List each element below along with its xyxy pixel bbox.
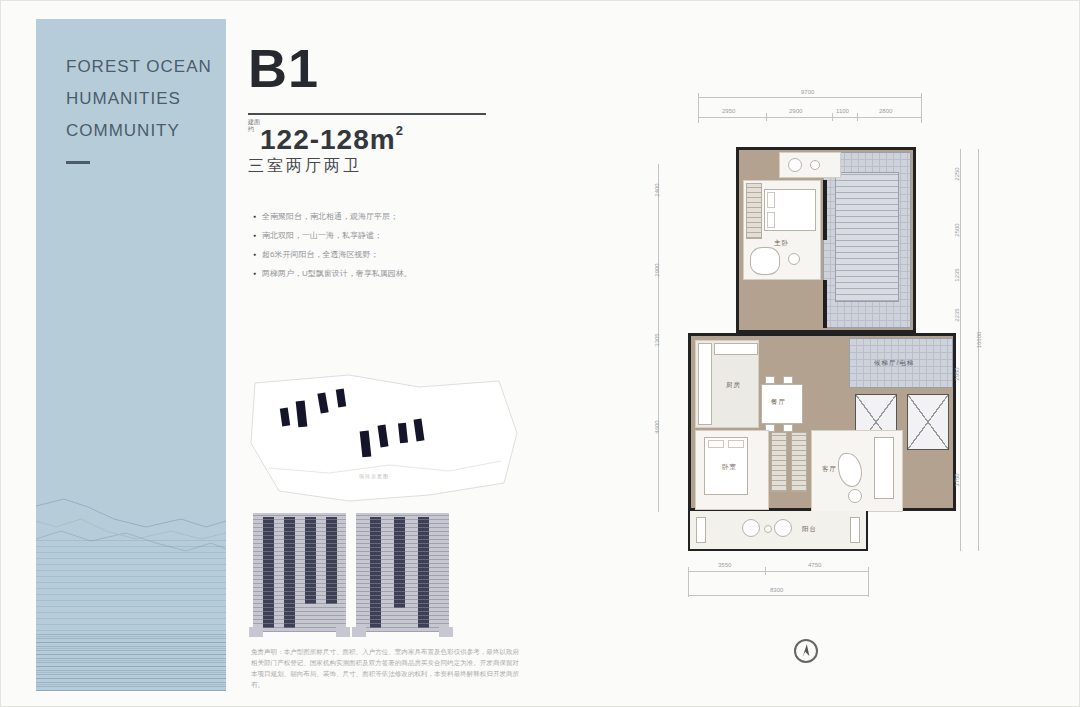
brand-slogan-line3: COMMUNITY	[66, 115, 212, 147]
selling-point: 两梯两户，U型飘窗设计，奢享私属园林。	[253, 264, 412, 283]
main-unit-block: 厨房 候梯厅/电梯 餐厅 卧室 客厅	[688, 333, 956, 511]
dim-left-seg: 4600	[654, 414, 660, 440]
tower-base	[336, 627, 350, 637]
site-boundary	[249, 373, 521, 509]
pillow	[767, 212, 775, 228]
bedroom-top-room: 主卧	[743, 180, 821, 280]
pillow	[728, 440, 744, 448]
dim-tick	[698, 93, 699, 123]
brand-slogan-line2: HUMANITIES	[66, 83, 212, 115]
dim-top-seg: 1100	[836, 108, 849, 114]
window-stripe	[305, 517, 316, 604]
dim-bottom-overall: 8300	[770, 587, 783, 593]
dim-left-seg: 3305	[654, 327, 660, 353]
bathtub	[750, 247, 780, 275]
dim-right-seg: 2500	[954, 217, 960, 243]
dim-left-seg: 2900	[654, 257, 660, 283]
wardrobe	[791, 432, 807, 492]
room-label-kitchen: 厨房	[726, 381, 741, 390]
room-label-lobby: 候梯厅/电梯	[874, 359, 914, 368]
chair	[783, 376, 793, 384]
balcony-chair	[774, 519, 792, 537]
dim-line	[698, 97, 921, 98]
dim-right-seg: 2950	[954, 361, 960, 387]
elevator-shaft	[907, 394, 949, 450]
pillow	[767, 192, 775, 208]
planter	[850, 517, 860, 543]
balcony: 阳台	[688, 511, 868, 551]
side-chair	[848, 489, 862, 503]
room-label-dining: 餐厅	[771, 398, 786, 407]
selling-points-list: 全南聚阳台，南北相通，观海厅平层； 南北双阳，一山一海，私享静谧； 超6米开间阳…	[253, 207, 412, 283]
window-stripe	[284, 517, 295, 628]
dim-bottom-seg: 3550	[718, 562, 731, 568]
room-label-bedroom-top: 主卧	[774, 239, 789, 248]
dim-right-seg: 2250	[954, 161, 960, 187]
bedroom-room: 卧室	[695, 430, 769, 510]
area-row: 建面约122-128m2	[248, 119, 403, 156]
dim-line	[698, 117, 921, 118]
bed	[764, 189, 816, 231]
title-rule	[248, 113, 486, 115]
dim-bottom-seg: 4750	[808, 562, 821, 568]
toilet	[788, 253, 800, 265]
chair	[765, 376, 775, 384]
dim-tick	[857, 113, 858, 121]
selling-point: 全南聚阳台，南北相通，观海厅平层；	[253, 207, 412, 226]
tower-base	[249, 627, 263, 637]
balcony-chair	[742, 519, 760, 537]
wardrobe	[771, 432, 787, 492]
area-value: 122-128m	[260, 124, 396, 155]
selling-point: 超6米开间阳台，全透海区视野；	[253, 245, 412, 264]
dim-tick	[688, 567, 689, 597]
kitchen-room: 厨房	[695, 340, 759, 428]
planter	[696, 517, 706, 543]
brand-slogan: FOREST OCEAN HUMANITIES COMMUNITY	[66, 51, 212, 147]
dim-right-seg: 3750	[954, 467, 960, 493]
floor-plan: 9700 2950 2900 1100 2800 主卧	[636, 79, 986, 679]
living-room: 客厅	[811, 430, 903, 512]
window-stripe	[263, 517, 274, 628]
dim-line	[688, 595, 868, 596]
window-stripe	[370, 517, 381, 628]
window-stripe	[418, 517, 429, 628]
staircase	[835, 172, 899, 302]
tower-base	[439, 627, 453, 637]
slogan-dash	[66, 161, 90, 164]
dim-top-seg: 2950	[722, 108, 735, 114]
sink	[788, 158, 802, 172]
room-label-balcony: 阳台	[802, 525, 817, 534]
kitchen-counter	[698, 343, 712, 425]
mountain-water-art	[36, 461, 226, 691]
kitchen-counter	[714, 343, 758, 355]
wall	[823, 180, 827, 240]
tower-elevation-a	[253, 513, 346, 632]
dim-top-overall: 9700	[801, 89, 814, 95]
elevator-lobby: 候梯厅/电梯	[849, 338, 953, 388]
dim-line	[688, 571, 868, 572]
dim-left-seg: 2400	[654, 177, 660, 203]
dim-tick	[921, 93, 922, 123]
window-stripe	[326, 517, 337, 604]
brand-slogan-line1: FOREST OCEAN	[66, 51, 212, 83]
area-superscript: 2	[396, 123, 403, 138]
coffee-table	[838, 453, 862, 487]
layout-spec: 三室两厅两卫	[248, 156, 362, 177]
chair	[783, 424, 793, 432]
dim-right-overall: 16600	[976, 327, 982, 353]
wall	[823, 280, 827, 328]
dim-top-seg: 2800	[879, 108, 892, 114]
dim-tick	[832, 113, 833, 121]
site-plan-map: 项目示意图	[249, 373, 521, 509]
balcony-table	[764, 525, 772, 533]
water-stripes-dense	[36, 631, 226, 691]
area-prefix: 建面约	[248, 119, 260, 133]
dim-line	[960, 149, 961, 551]
pillow	[708, 440, 724, 448]
compass-needle	[796, 641, 816, 661]
room-label-living: 客厅	[822, 465, 837, 474]
wardrobe	[746, 183, 762, 239]
room-label-bedroom: 卧室	[722, 463, 737, 472]
dim-top-seg: 2900	[789, 108, 802, 114]
tower-elevation-b	[356, 513, 449, 632]
site-plan-caption: 项目示意图	[359, 473, 389, 479]
toilet	[810, 160, 820, 170]
sofa	[874, 437, 894, 499]
unit-name: B1	[248, 41, 319, 95]
dim-right-seg: 1235	[954, 262, 960, 288]
window-stripe	[394, 517, 405, 608]
selling-point: 南北双阳，一山一海，私享静谧；	[253, 226, 412, 245]
dim-tick	[868, 567, 869, 597]
north-arrow-compass	[794, 639, 818, 663]
upper-unit-block: 主卧	[736, 147, 916, 333]
bath-top-room	[779, 152, 841, 178]
dim-tick	[766, 113, 767, 121]
dim-right-seg: 2235	[954, 302, 960, 328]
tower-base	[352, 627, 366, 637]
brand-sidebar: FOREST OCEAN HUMANITIES COMMUNITY	[36, 19, 226, 691]
legal-disclaimer: 免责声明：本户型图所标尺寸、面积、入户方位、室内家具布置及色彩仅供参考，最终以政…	[251, 646, 519, 690]
dim-tick	[765, 567, 766, 575]
